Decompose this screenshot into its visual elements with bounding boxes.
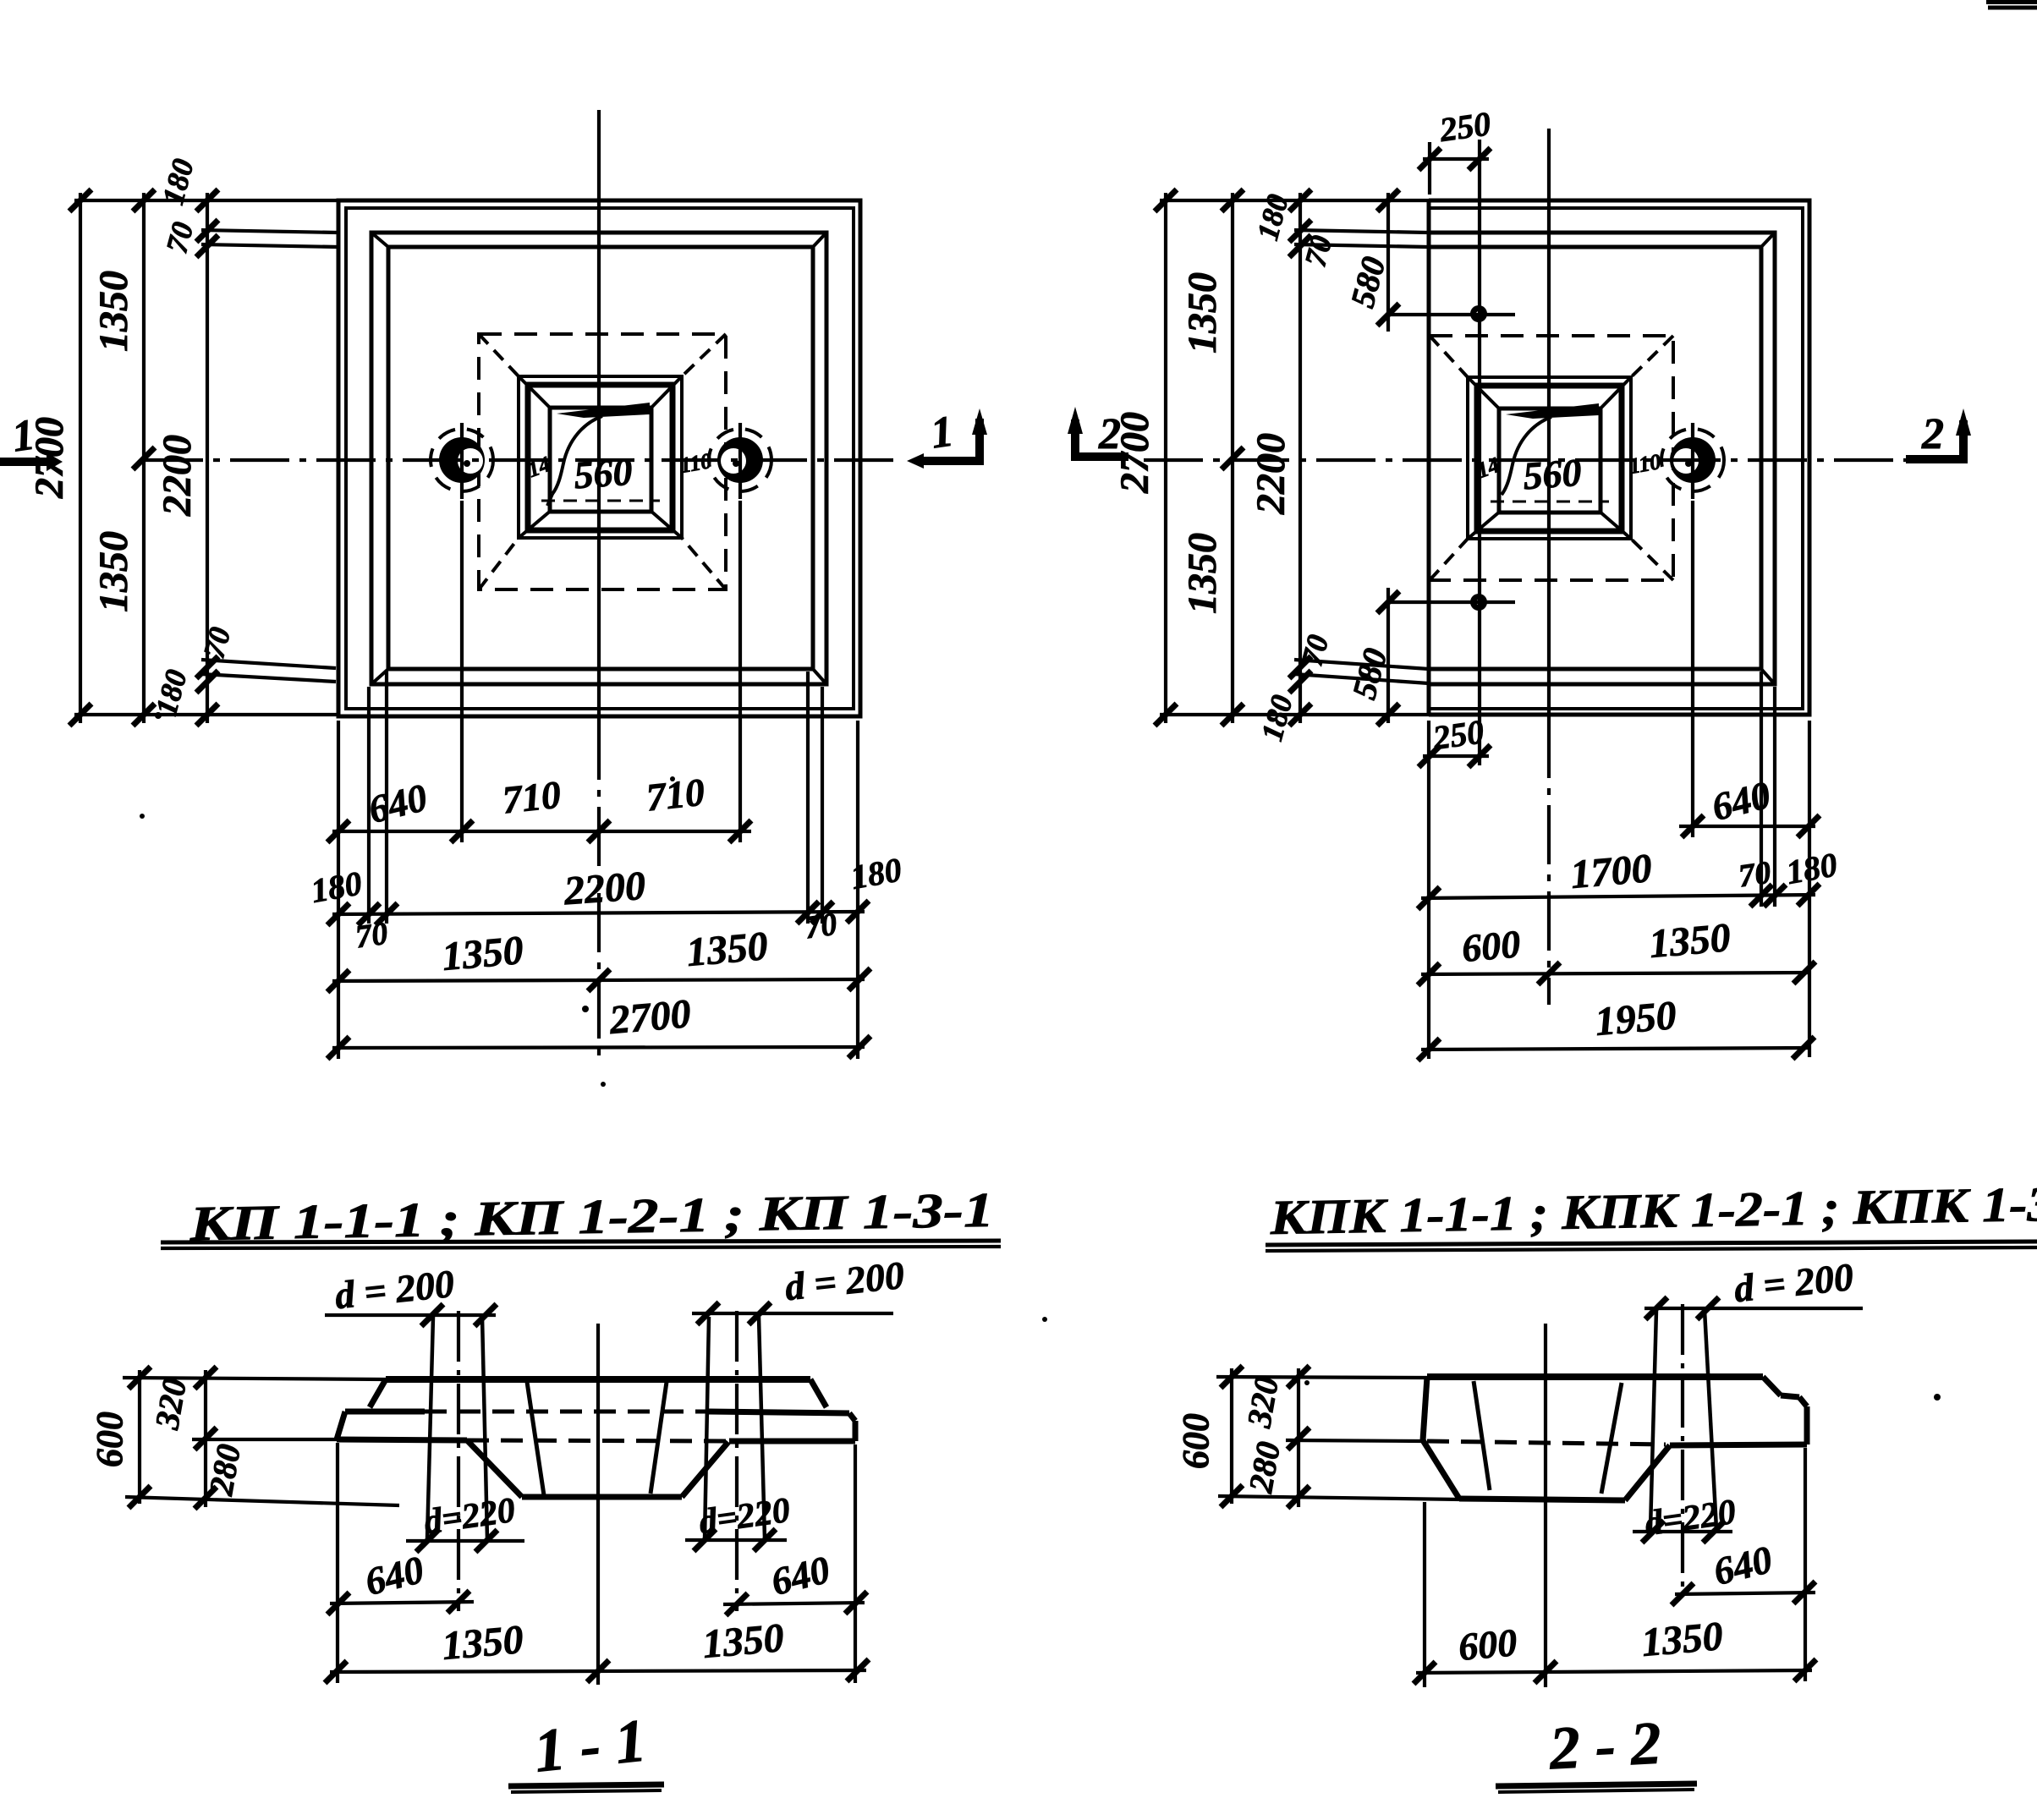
- svg-text:70: 70: [1737, 855, 1773, 895]
- svg-text:2700: 2700: [1112, 412, 1157, 494]
- svg-text:1350: 1350: [441, 928, 525, 979]
- svg-text:710: 710: [500, 773, 563, 822]
- svg-text:1350: 1350: [1640, 1614, 1725, 1665]
- svg-text:1350: 1350: [91, 531, 136, 612]
- svg-text:70: 70: [803, 907, 839, 946]
- svg-text:2200: 2200: [1249, 433, 1293, 515]
- svg-text:2700: 2700: [607, 991, 693, 1043]
- svg-text:600: 600: [89, 1412, 130, 1467]
- svg-text:2 - 2: 2 - 2: [1547, 1709, 1663, 1783]
- svg-text:1950: 1950: [1594, 993, 1678, 1044]
- svg-text:1350: 1350: [91, 271, 136, 352]
- svg-text:560: 560: [1522, 451, 1583, 498]
- svg-text:250: 250: [1430, 712, 1486, 757]
- svg-text:1350: 1350: [701, 1615, 786, 1667]
- svg-text:600: 600: [1460, 922, 1522, 970]
- svg-text:1350: 1350: [1180, 272, 1225, 354]
- svg-text:2200: 2200: [562, 863, 646, 914]
- svg-text:2200: 2200: [155, 435, 200, 517]
- svg-text:2: 2: [1921, 410, 1944, 458]
- svg-text:2700: 2700: [27, 417, 72, 499]
- svg-text:1350: 1350: [441, 1617, 525, 1669]
- svg-text:1350: 1350: [1648, 915, 1732, 967]
- svg-text:600: 600: [1457, 1620, 1518, 1669]
- svg-text:600: 600: [1175, 1413, 1216, 1469]
- svg-text:560: 560: [573, 450, 634, 497]
- svg-text:710: 710: [644, 770, 706, 820]
- svg-text:1700: 1700: [1569, 846, 1654, 897]
- svg-text:1350: 1350: [1180, 533, 1225, 614]
- svg-text:250: 250: [1436, 104, 1493, 149]
- svg-text:70: 70: [354, 916, 390, 956]
- svg-text:1350: 1350: [685, 924, 770, 975]
- svg-text:1 - 1: 1 - 1: [531, 1706, 650, 1784]
